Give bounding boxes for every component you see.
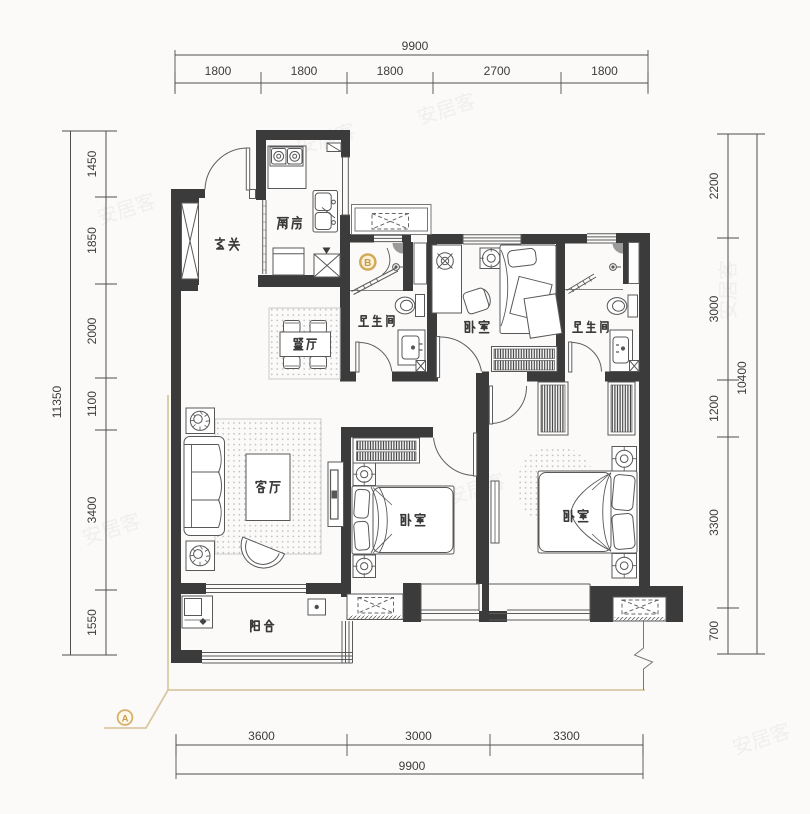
svg-text:3300: 3300	[707, 509, 721, 536]
svg-text:1800: 1800	[291, 64, 318, 78]
svg-text:9900: 9900	[399, 759, 426, 773]
svg-text:3400: 3400	[85, 496, 99, 523]
svg-text:1450: 1450	[85, 150, 99, 177]
svg-text:3600: 3600	[248, 729, 275, 743]
svg-text:700: 700	[707, 621, 721, 641]
svg-text:1850: 1850	[85, 227, 99, 254]
svg-text:2200: 2200	[707, 172, 721, 199]
svg-text:1800: 1800	[591, 64, 618, 78]
svg-text:B: B	[364, 258, 371, 269]
svg-text:3000: 3000	[707, 295, 721, 322]
svg-text:A: A	[122, 714, 129, 725]
svg-text:1550: 1550	[85, 609, 99, 636]
svg-text:2000: 2000	[85, 317, 99, 344]
svg-text:11350: 11350	[50, 385, 64, 418]
svg-text:1100: 1100	[85, 391, 99, 417]
svg-text:3000: 3000	[405, 729, 432, 743]
svg-text:9900: 9900	[402, 39, 429, 53]
svg-text:1800: 1800	[377, 64, 404, 78]
svg-text:3300: 3300	[553, 729, 580, 743]
svg-text:1200: 1200	[707, 395, 721, 422]
svg-text:2700: 2700	[484, 64, 511, 78]
svg-text:10400: 10400	[735, 361, 749, 395]
svg-text:1800: 1800	[205, 64, 232, 78]
